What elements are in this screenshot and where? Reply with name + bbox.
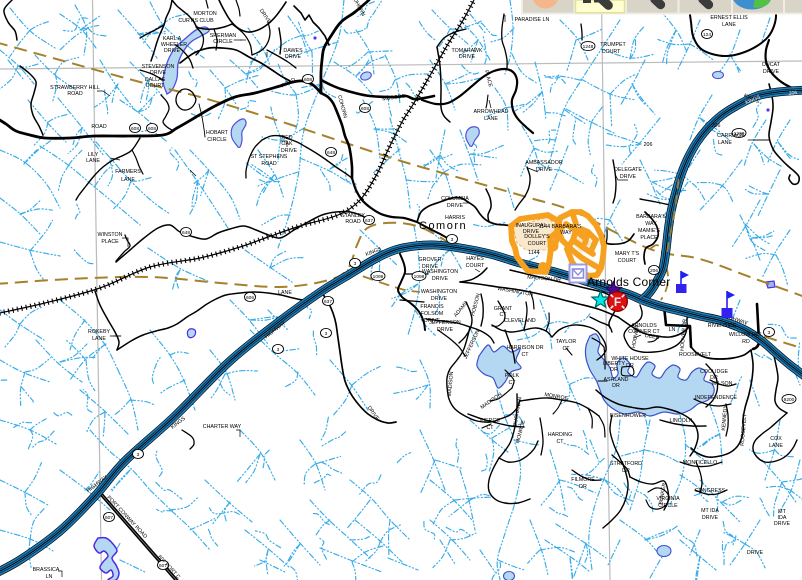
svg-text:ROAD: ROAD [91,124,106,130]
svg-text:CT: CT [508,380,516,386]
svg-text:HARDING: HARDING [548,432,572,438]
svg-text:TRUMPET: TRUMPET [600,42,626,48]
svg-text:COURT: COURT [528,241,548,247]
svg-text:CT: CT [486,425,494,431]
svg-text:CIRCLE: CIRCLE [207,137,227,143]
svg-text:DUCAT: DUCAT [762,62,781,68]
svg-text:CARRIAGE: CARRIAGE [717,133,745,139]
svg-text:VIRGINIA: VIRGINIA [656,496,680,502]
svg-text:COURT: COURT [466,263,486,269]
svg-text:LANE: LANE [484,116,498,122]
svg-text:POLK: POLK [505,373,520,379]
svg-text:DRIVE: DRIVE [447,203,464,209]
svg-text:EISENHOWER: EISENHOWER [610,413,646,419]
svg-text:PLACE: PLACE [640,235,658,241]
svg-text:DRIVE: DRIVE [747,550,764,556]
svg-text:STRATFORD: STRATFORD [610,461,642,467]
svg-text:206: 206 [644,142,653,148]
svg-text:JEFFERSON: JEFFERSON [429,320,461,326]
svg-text:1248: 1248 [583,44,594,50]
svg-text:CT: CT [562,346,570,352]
svg-text:ERNEST ELLIS: ERNEST ELLIS [710,15,748,21]
svg-text:COX: COX [770,436,782,442]
svg-text:648: 648 [182,230,190,236]
svg-text:DRIVE: DRIVE [459,54,476,60]
svg-text:HOBART: HOBART [206,130,229,136]
svg-text:206: 206 [650,268,658,274]
svg-text:3: 3 [137,452,140,458]
svg-text:WAY: WAY [560,230,572,236]
svg-text:MARY T'S: MARY T'S [615,251,640,257]
svg-text:CLEVELAND: CLEVELAND [504,318,536,324]
svg-text:CIRCLE: CIRCLE [658,503,678,509]
svg-text:INDEPENDENCE: INDEPENDENCE [695,395,738,401]
svg-text:606: 606 [246,295,254,301]
svg-text:MT IDA: MT IDA [701,508,719,514]
svg-text:ST STEPHENS: ST STEPHENS [251,154,288,160]
svg-text:1144: 1144 [528,250,539,256]
svg-text:WAY: WAY [645,221,657,227]
svg-text:206: 206 [712,123,721,129]
svg-text:WHITE HOUSE: WHITE HOUSE [611,356,649,362]
svg-text:ARROWHEAD: ARROWHEAD [473,109,508,115]
svg-text:MONTICELLO: MONTICELLO [683,460,717,466]
svg-text:DRIVE: DRIVE [774,521,791,527]
svg-text:608: 608 [131,126,139,132]
svg-text:FARMERS: FARMERS [115,169,141,175]
svg-text:DRIVE: DRIVE [432,276,449,282]
svg-text:DRIVE: DRIVE [702,515,719,521]
svg-text:DRIVE: DRIVE [763,69,780,75]
svg-text:COURT: COURT [618,258,638,264]
svg-text:TAYLOR: TAYLOR [556,339,577,345]
svg-text:MAMIE'S: MAMIE'S [638,228,660,234]
svg-text:ROAD: ROAD [261,161,276,167]
svg-text:LANE: LANE [722,22,736,28]
svg-text:CT: CT [556,439,564,445]
svg-text:Comorn: Comorn [419,220,467,232]
svg-text:608: 608 [304,77,312,83]
svg-text:ROAD: ROAD [345,219,360,225]
svg-text:AMBASSADOR: AMBASSADOR [525,160,563,166]
svg-text:DR: DR [610,367,618,373]
svg-text:3: 3 [354,261,357,267]
svg-text:LANE: LANE [718,140,732,146]
svg-text:DR: DR [612,383,620,389]
svg-text:DRIVE: DRIVE [536,167,553,173]
svg-text:CHARTER WAY: CHARTER WAY [203,424,242,430]
svg-text:CT: CT [521,352,529,358]
svg-text:DRIVE: DRIVE [431,296,448,302]
svg-text:BARBARA'S: BARBARA'S [636,214,666,220]
svg-text:PIERCE: PIERCE [480,418,500,424]
svg-text:3: 3 [325,331,328,337]
svg-text:LANE: LANE [278,290,292,296]
svg-text:9200: 9200 [784,397,795,403]
svg-text:HAYES: HAYES [466,256,484,262]
svg-text:DR: DR [579,484,587,490]
svg-text:COURT: COURT [602,49,622,55]
svg-text:CIRCLE: CIRCLE [213,39,233,45]
svg-text:BRASSICA: BRASSICA [33,567,60,573]
svg-text:LANE: LANE [769,443,783,449]
svg-text:WASHINGTON: WASHINGTON [422,269,458,275]
svg-text:RD: RD [742,339,750,345]
svg-text:DRIVE: DRIVE [164,48,181,54]
svg-text:DRIVE: DRIVE [285,54,302,60]
svg-text:FOLSOM: FOLSOM [421,311,443,317]
svg-text:1099: 1099 [373,274,384,280]
svg-text:MORTON: MORTON [193,11,217,17]
svg-text:637: 637 [365,218,373,224]
svg-text:PARADISE LN: PARADISE LN [515,17,550,23]
svg-text:CURTIS CLUB: CURTIS CLUB [178,18,214,24]
svg-text:COLUMBIA: COLUMBIA [441,196,469,202]
svg-text:637: 637 [324,299,332,305]
svg-text:F: F [614,295,621,309]
svg-text:DELEGATE: DELEGATE [614,167,642,173]
svg-text:648: 648 [327,150,335,156]
svg-text:124: 124 [703,32,711,38]
svg-text:WINSTON: WINSTON [98,232,123,238]
svg-text:LANE: LANE [121,177,135,183]
svg-text:DRIVE: DRIVE [437,327,454,333]
svg-text:LANE: LANE [92,336,106,342]
svg-text:206: 206 [789,90,798,97]
svg-text:FILMORE: FILMORE [571,477,595,483]
svg-text:COURT: COURT [146,83,166,89]
svg-text:DR: DR [622,468,630,474]
svg-text:3: 3 [277,347,280,353]
svg-text:607: 607 [105,515,113,521]
svg-text:LN: LN [669,327,676,333]
svg-text:608: 608 [361,106,369,112]
svg-text:DR: DR [626,363,634,369]
svg-text:CONGRESS: CONGRESS [695,488,726,494]
svg-text:ROKEBY: ROKEBY [88,329,111,335]
svg-text:WILSON: WILSON [712,381,733,387]
svg-text:Arnolds Corner: Arnolds Corner [587,275,671,289]
svg-text:HARRISON DR: HARRISON DR [506,345,543,351]
svg-text:RIVERSIDE: RIVERSIDE [708,323,737,329]
svg-text:LINCOLN: LINCOLN [670,418,693,424]
svg-text:WILLOW HILL: WILLOW HILL [729,332,763,338]
svg-text:LANE: LANE [86,158,100,164]
svg-text:DRIVE: DRIVE [620,174,637,180]
svg-text:608: 608 [148,126,156,132]
svg-text:FRANCIS: FRANCIS [420,304,444,310]
svg-text:3: 3 [451,237,454,243]
svg-text:GROVER: GROVER [419,257,442,263]
svg-text:DRIVE: DRIVE [150,70,167,76]
svg-text:PLACE: PLACE [101,239,119,245]
svg-text:ROAD: ROAD [67,91,82,97]
svg-text:ROOSEVELT: ROOSEVELT [679,352,712,358]
svg-text:WASHINGTON: WASHINGTON [421,289,457,295]
svg-text:3: 3 [768,330,771,336]
svg-text:DOLLEY'S: DOLLEY'S [524,234,550,240]
svg-text:LN: LN [46,574,53,580]
